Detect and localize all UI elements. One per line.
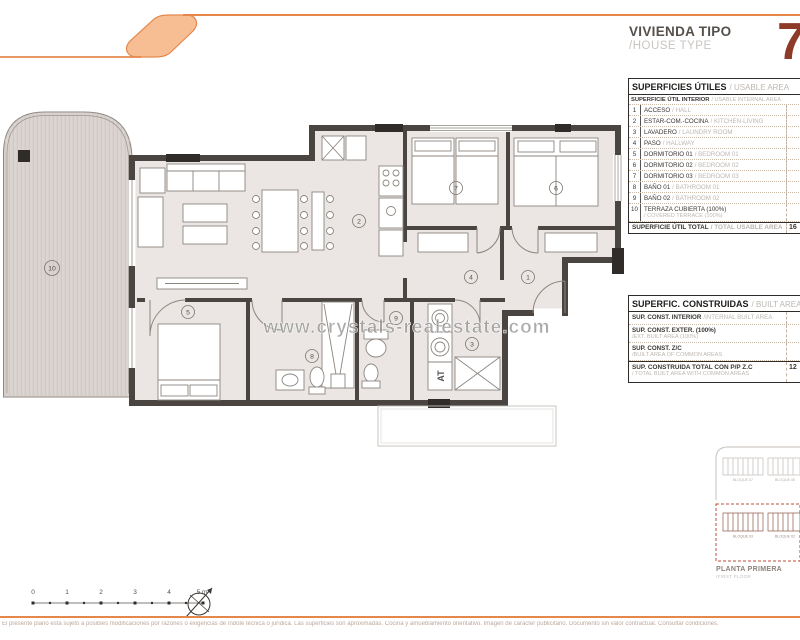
room-label-3: 3: [466, 338, 479, 351]
svg-text:9: 9: [394, 316, 398, 323]
terrace-pillar: [18, 150, 30, 162]
key-plan: BLOQUE 07 BLOQUE 06 BLOQUE 03 BLOQUE 02: [688, 438, 800, 566]
room-label-5: 5: [182, 306, 195, 319]
svg-text:10: 10: [48, 266, 56, 273]
usable-table-header: SUPERFICIES ÚTILES / USABLE AREA: [629, 79, 800, 95]
usable-table-subheader: SUPERFICIE ÚTIL INTERIOR / USABLE INTERN…: [629, 95, 800, 105]
block-label: BLOQUE 06: [775, 478, 795, 482]
page-title-block: VIVIENDA TIPO /HOUSE TYPE: [629, 24, 731, 54]
svg-text:3: 3: [470, 342, 474, 349]
svg-text:4: 4: [469, 275, 473, 282]
table-row: 8BAÑO 01/ BATHROOM 01: [629, 182, 800, 193]
svg-text:7: 7: [454, 186, 458, 193]
disclaimer-text: El presente plano está sujeto a posibles…: [2, 621, 798, 627]
keyplan-caption: PLANTA PRIMERA /FIRST FLOOR: [716, 566, 782, 579]
accent-line-bottom: [0, 616, 800, 618]
table-row: 10TERRAZA CUBIERTA (100%)/ COVERED TERRA…: [629, 204, 800, 222]
usable-table-title: SUPERFICIES ÚTILES: [632, 82, 727, 92]
page-title: VIVIENDA TIPO: [629, 24, 731, 40]
built-total-row: SUP. CONSTRUIDA TOTAL CON P/P Z.C/ TOTAL…: [629, 361, 800, 382]
room-label-4: 4: [465, 271, 478, 284]
table-row: 5DORMITORIO 01/ BEDROOM 01: [629, 149, 800, 160]
built-area-table: SUPERFIC. CONSTRUIDAS / BUILT AREA SUP. …: [628, 295, 800, 383]
keyplan-highlight: [716, 504, 800, 561]
watermark: www.crystals-realestate.com: [262, 317, 550, 338]
room-label-1: 1: [522, 271, 535, 284]
built-total-value: 12: [786, 362, 800, 382]
block-label: BLOQUE 02: [775, 535, 795, 539]
table-row: 2ESTAR-COM.-COCINA/ KITCHEN-LIVING: [629, 116, 800, 127]
table-row: 6DORMITORIO 02/ BEDROOM 02: [629, 160, 800, 171]
block-label: BLOQUE 03: [733, 535, 753, 539]
table-row: SUP. CONST. INTERIOR/INTERNAL BUILT AREA: [629, 312, 800, 325]
door-arcs: [150, 228, 565, 336]
usable-total-value: 16: [786, 223, 800, 233]
svg-text:0: 0: [31, 589, 35, 596]
interior-walls: [137, 128, 618, 403]
svg-text:4: 4: [167, 589, 171, 596]
room-label-2: 2: [353, 215, 366, 228]
svg-text:6: 6: [554, 186, 558, 193]
table-row: SUP. CONST. EXTER. (100%)/EXT. BUILT ARE…: [629, 325, 800, 343]
floor-plan-svg: AT 1 2 3 4 5 6 7 8 9 10 www.crystals-rea…: [0, 80, 628, 460]
svg-text:2: 2: [99, 589, 103, 596]
usable-total-row: SUPERFICIE ÚTIL TOTAL/ TOTAL USABLE AREA…: [629, 222, 800, 233]
svg-text:3: 3: [133, 589, 137, 596]
table-row: 9BAÑO 02/ BATHROOM 02: [629, 193, 800, 204]
svg-text:5: 5: [186, 310, 190, 317]
scale-bar: 0 1 2 3 4 5 m: [22, 580, 232, 625]
svg-text:2: 2: [357, 219, 361, 226]
svg-text:1: 1: [65, 589, 69, 596]
page-root: VIVIENDA TIPO /HOUSE TYPE 7: [0, 0, 800, 640]
big-unit-number: 7: [777, 16, 800, 68]
caption-floor-en: /FIRST FLOOR: [716, 574, 782, 579]
built-table-header: SUPERFIC. CONSTRUIDAS / BUILT AREA: [629, 296, 800, 312]
room-label-8: 8: [306, 350, 319, 363]
apartment-outline: [132, 128, 618, 403]
table-row: SUP. CONST. Z/C/BUILT AREA OF COMMON ARE…: [629, 343, 800, 361]
built-table-title: SUPERFIC. CONSTRUIDAS: [632, 299, 749, 309]
room-label-7: 7: [450, 182, 463, 195]
usable-area-table: SUPERFICIES ÚTILES / USABLE AREA SUPERFI…: [628, 78, 800, 234]
windows-and-lintels: [129, 124, 625, 408]
page-subtitle: /HOUSE TYPE: [629, 40, 731, 54]
block-label: BLOQUE 07: [733, 478, 753, 482]
room-label-6: 6: [550, 182, 563, 195]
room-label-10: 10: [45, 261, 60, 276]
room-labels: 1 2 3 4 5 6 7 8 9 10: [45, 182, 563, 363]
table-row: 1ACCESO/ HALL: [629, 105, 800, 116]
room-label-9: 9: [390, 312, 403, 325]
table-row: 4PASO/ HALLWAY: [629, 138, 800, 149]
table-row: 7DORMITORIO 03/ BEDROOM 03: [629, 171, 800, 182]
at-label: AT: [436, 370, 446, 382]
svg-text:8: 8: [310, 354, 314, 361]
keyplan-blocks-bottom: [723, 513, 800, 531]
terrace: [4, 112, 133, 397]
caption-planta: PLANTA PRIMERA: [716, 566, 782, 574]
table-row: 3LAVADERO/ LAUNDRY ROOM: [629, 127, 800, 138]
logo-shape: [127, 15, 197, 57]
keyplan-blocks-top: [723, 458, 800, 475]
furniture: [138, 136, 598, 446]
svg-text:1: 1: [526, 275, 530, 282]
